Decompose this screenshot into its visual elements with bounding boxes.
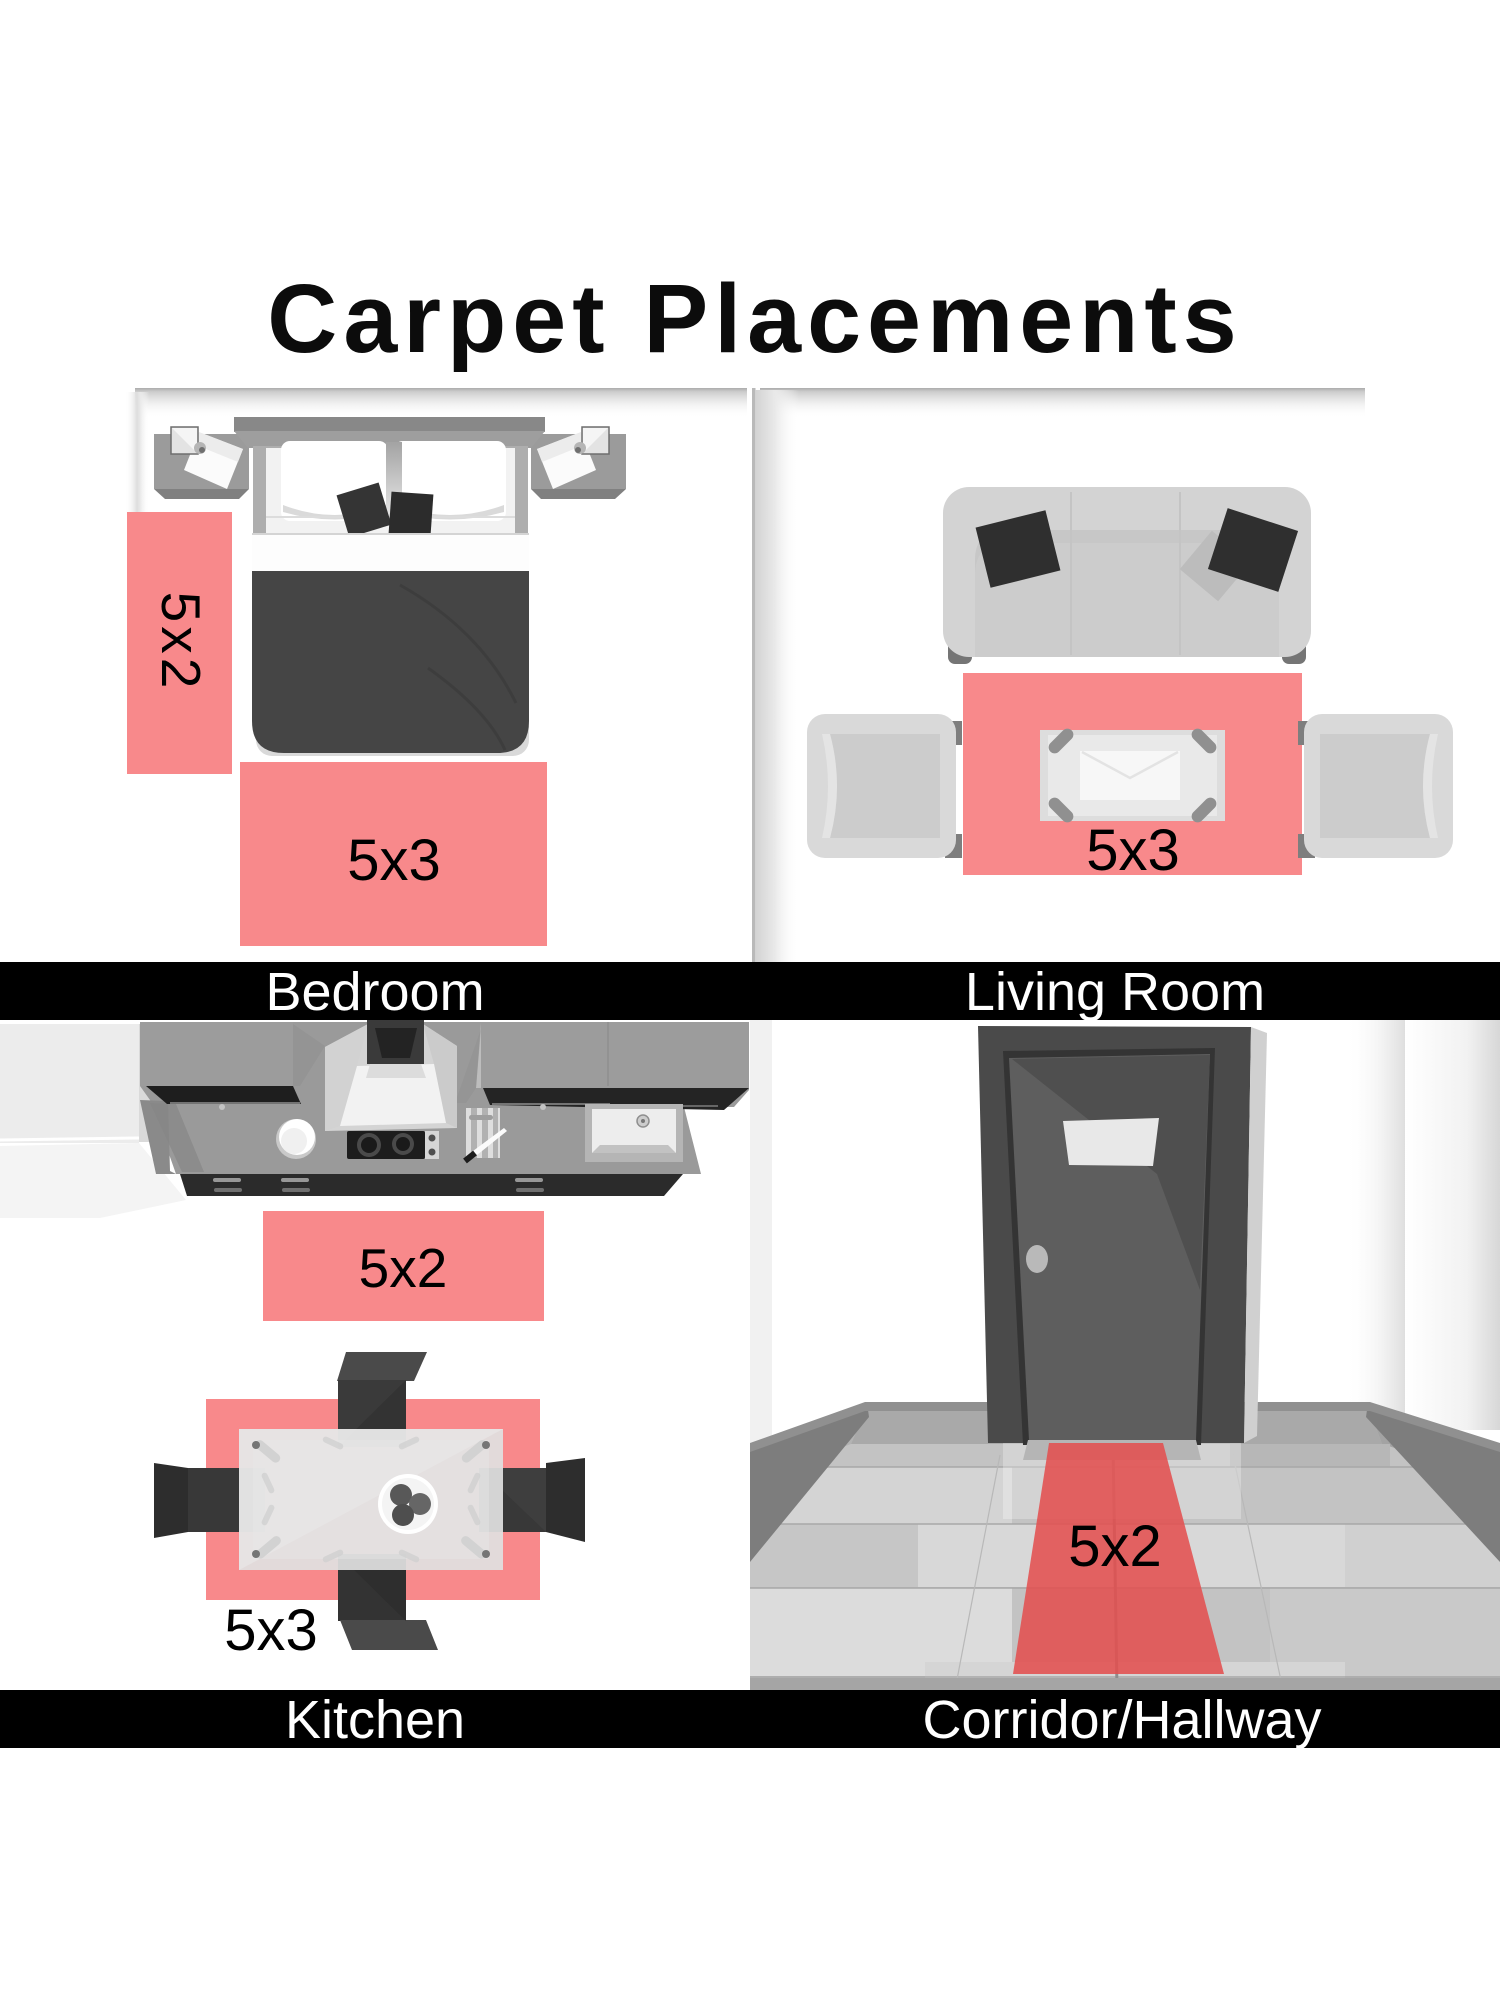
svg-text:Bedroom: Bedroom (265, 962, 484, 1022)
svg-text:Carpet Placements: Carpet Placements (267, 264, 1242, 373)
svg-text:5x2: 5x2 (1068, 1514, 1162, 1579)
svg-text:Living Room: Living Room (965, 962, 1265, 1022)
svg-text:5x3: 5x3 (347, 828, 441, 893)
svg-text:Kitchen: Kitchen (285, 1690, 465, 1750)
svg-text:5x3: 5x3 (224, 1598, 318, 1663)
svg-text:5x2: 5x2 (359, 1237, 448, 1299)
svg-text:5x3: 5x3 (1086, 818, 1180, 883)
svg-text:5x2: 5x2 (150, 592, 212, 693)
svg-text:Corridor/Hallway: Corridor/Hallway (922, 1690, 1321, 1750)
